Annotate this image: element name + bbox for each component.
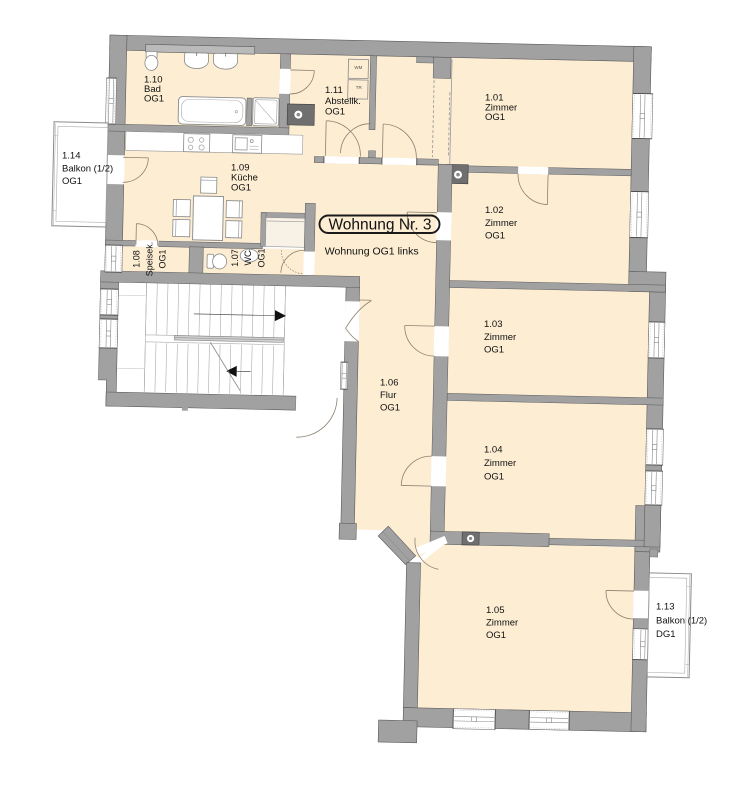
svg-text:1.14: 1.14 <box>62 151 81 162</box>
svg-text:1.02: 1.02 <box>485 205 504 216</box>
svg-text:OG1: OG1 <box>231 183 251 194</box>
svg-text:Balkon (1/2): Balkon (1/2) <box>62 164 113 175</box>
svg-text:WC: WC <box>243 250 253 265</box>
svg-text:OG1: OG1 <box>325 107 345 118</box>
svg-text:Zimmer: Zimmer <box>486 618 518 629</box>
svg-text:Wohnung OG1 links: Wohnung OG1 links <box>325 246 419 258</box>
svg-text:OG1: OG1 <box>486 630 506 641</box>
svg-text:Flur: Flur <box>380 390 396 401</box>
svg-text:Zimmer: Zimmer <box>484 332 516 343</box>
svg-text:OG1: OG1 <box>158 249 168 268</box>
svg-text:OG1: OG1 <box>62 176 82 187</box>
svg-text:Abstellk.: Abstellk. <box>325 96 361 107</box>
svg-text:1.05: 1.05 <box>486 605 505 616</box>
svg-text:WM: WM <box>354 65 362 70</box>
svg-text:OG1: OG1 <box>144 94 164 105</box>
svg-text:OG1: OG1 <box>257 248 267 267</box>
svg-text:1.03: 1.03 <box>484 319 503 330</box>
svg-text:TR: TR <box>356 85 363 90</box>
svg-text:Zimmer: Zimmer <box>484 458 516 469</box>
svg-text:1.08: 1.08 <box>132 250 142 268</box>
svg-text:Balkon (1/2): Balkon (1/2) <box>656 616 707 627</box>
svg-text:Zimmer: Zimmer <box>485 218 517 229</box>
svg-text:OG1: OG1 <box>484 345 504 356</box>
svg-text:1.13: 1.13 <box>656 602 675 613</box>
svg-text:OG1: OG1 <box>485 231 505 242</box>
svg-text:Speisek.: Speisek. <box>145 242 155 277</box>
svg-text:1.04: 1.04 <box>484 445 503 456</box>
svg-text:OG1: OG1 <box>484 472 504 483</box>
svg-text:OG1: OG1 <box>485 112 505 123</box>
svg-text:1.06: 1.06 <box>380 378 399 389</box>
svg-text:1.11: 1.11 <box>325 85 343 96</box>
svg-text:Wohnung Nr. 3: Wohnung Nr. 3 <box>328 217 431 234</box>
svg-text:OG1: OG1 <box>380 403 400 414</box>
svg-text:DG1: DG1 <box>656 629 676 640</box>
svg-text:1.07: 1.07 <box>230 249 240 267</box>
